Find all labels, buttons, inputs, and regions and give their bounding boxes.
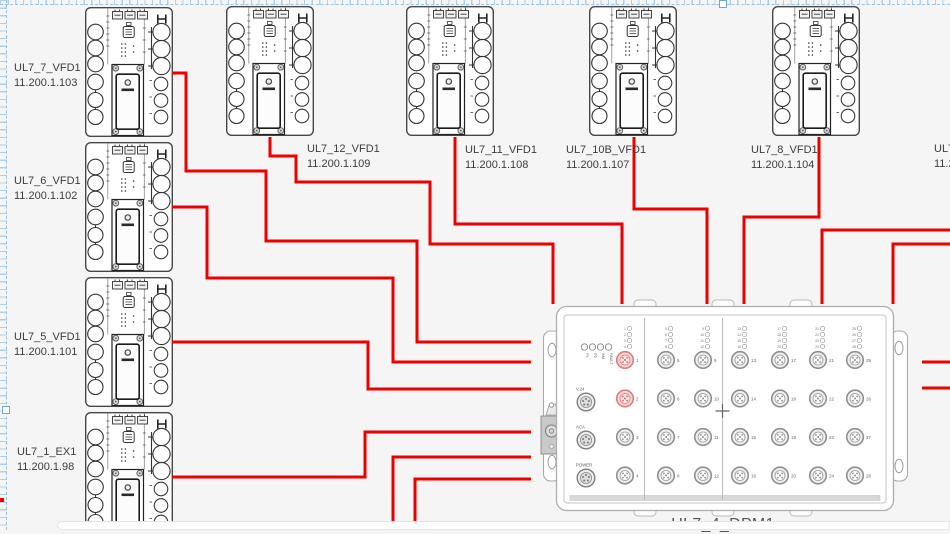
dpm-status-led: [581, 344, 587, 350]
dpm-port-led: [782, 338, 786, 342]
dpm-port-number: 19: [791, 435, 797, 440]
page-guide-handle-left[interactable]: [2, 406, 10, 414]
device-label-clipped: UL7 11.2: [934, 142, 950, 172]
dpm-port-led: [857, 344, 861, 348]
dpm-port-led: [742, 338, 746, 342]
dpm-status-led-label: FAULT: [609, 353, 613, 365]
dpm-port-led: [857, 338, 861, 342]
vfd-device-ul7-5[interactable]: [86, 278, 173, 407]
dpm-led-number: 13: [737, 327, 741, 331]
device-name: UL7_10B_VFD1: [566, 143, 646, 158]
dpm-port-number: 14: [751, 396, 757, 401]
dpm-led-number: 2: [624, 333, 626, 337]
device-name: UL7_5_VFD1: [14, 330, 81, 345]
vfd-device-ul7-6[interactable]: [86, 143, 173, 272]
dpm-led-number: 1: [624, 327, 626, 331]
dpm-port-number: 28: [866, 473, 872, 478]
dpm-led-number: 15: [737, 339, 741, 343]
device-ip: 11.200.1.98: [17, 460, 76, 475]
device-ip: 11.200.1.101: [14, 345, 81, 360]
device-ip: 11.200.1.107: [566, 158, 646, 173]
network-cable[interactable]: [172, 207, 531, 362]
device-ip: 11.2: [934, 157, 950, 172]
horizontal-scrollbar[interactable]: [57, 521, 950, 530]
dpm-port-led: [742, 332, 746, 336]
device-label: UL7_6_VFD1 11.200.1.102: [14, 174, 81, 204]
dpm-led-number: 6: [665, 333, 667, 337]
page-guide-handle-top[interactable]: [719, 0, 727, 8]
dpm-port-led: [742, 344, 746, 348]
device-ip: 11.200.1.104: [751, 158, 818, 173]
device-name: UL7_6_VFD1: [14, 174, 81, 189]
dpm-led-number: 12: [700, 345, 704, 349]
dpm-port-number: 25: [866, 358, 872, 363]
device-label: UL7_12_VFD1 11.200.1.109: [307, 142, 380, 172]
device-label: UL7_1_EX1 11.200.1.98: [17, 445, 76, 475]
device-name: UL7_7_VFD1: [14, 61, 81, 76]
dpm-led-number: 10: [700, 333, 704, 337]
dpm-port-led: [782, 332, 786, 336]
dpm-led-number: 25: [852, 327, 856, 331]
dpm-port-number: 23: [829, 435, 835, 440]
dpm-port-led: [668, 326, 672, 330]
dpm-led-number: 5: [665, 327, 667, 331]
vfd-device-ul7-10b[interactable]: [590, 7, 677, 136]
dpm-port-led: [705, 332, 709, 336]
dpm-led-number: 19: [777, 339, 781, 343]
cable-edge-marker: [0, 498, 4, 502]
dpm-status-led-label: P1: [585, 353, 589, 358]
device-ip: 11.200.1.102: [14, 189, 81, 204]
dpm-port-number: 12: [714, 473, 720, 478]
dpm-port-led: [668, 344, 672, 348]
dpm-led-number: 8: [665, 345, 667, 349]
dpm-led-number: 21: [815, 327, 819, 331]
dpm-device[interactable]: 1122334455667788991010111112121313141415…: [541, 300, 908, 516]
dpm-status-led: [605, 344, 611, 350]
dpm-port-number: 26: [866, 396, 872, 401]
dpm-port-led: [668, 332, 672, 336]
dpm-port-led: [820, 344, 824, 348]
dpm-port-led: [705, 326, 709, 330]
dpm-port-led: [857, 326, 861, 330]
device-label: UL7_8_VFD1 11.200.1.104: [751, 143, 818, 173]
device-name: UL7_12_VFD1: [307, 142, 380, 157]
device-label: UL7_5_VFD1 11.200.1.101: [14, 330, 81, 360]
dpm-led-number: 9: [702, 327, 704, 331]
dpm-port-number: 27: [866, 435, 872, 440]
dpm-port-led: [782, 326, 786, 330]
dpm-led-number: 11: [700, 339, 704, 343]
device-label: UL7_10B_VFD1 11.200.1.107: [566, 143, 646, 173]
dpm-port-number: 22: [829, 396, 835, 401]
dpm-port-led: [820, 338, 824, 342]
dpm-status-led: [589, 344, 595, 350]
dpm-led-number: 23: [815, 339, 819, 343]
dpm-connector-label: V.24: [576, 387, 585, 392]
dpm-port-number: 15: [751, 435, 757, 440]
dpm-led-number: 28: [852, 345, 856, 349]
dpm-port-led: [627, 344, 631, 348]
dpm-led-number: 17: [777, 327, 781, 331]
dpm-connector-label: ACA: [576, 425, 585, 430]
ground-screw-icon: [546, 425, 558, 437]
device-ip: 11.200.1.109: [307, 157, 380, 172]
clamp-screw-icon: [549, 403, 553, 407]
dpm-connector-power[interactable]: POWER: [576, 463, 595, 487]
network-cable[interactable]: [172, 342, 531, 389]
dpm-port-led: [627, 326, 631, 330]
dpm-led-number: 18: [777, 333, 781, 337]
left-page-guide: [0, 0, 7, 530]
dpm-led-number: 20: [777, 345, 781, 349]
dpm-port-led: [820, 326, 824, 330]
wiring-diagram: 1122334455667788991010111112121313141415…: [0, 0, 950, 530]
vfd-device-ul7-12[interactable]: [227, 7, 314, 136]
dpm-port-led: [627, 338, 631, 342]
device-name: UL7_11_VFD1: [465, 143, 537, 158]
dpm-faceplate: [564, 315, 886, 503]
dpm-led-number: 22: [815, 333, 819, 337]
dpm-port-led: [857, 332, 861, 336]
dpm-led-number: 3: [624, 339, 626, 343]
dpm-led-number: 4: [624, 345, 626, 349]
network-cable[interactable]: [172, 432, 531, 477]
dpm-port-number: 20: [791, 473, 797, 478]
dpm-led-number: 7: [665, 339, 667, 343]
dpm-connector-label: POWER: [576, 463, 592, 468]
dpm-led-number: 27: [852, 339, 856, 343]
network-cable[interactable]: [822, 230, 950, 304]
vfd-device-ul7-7[interactable]: [86, 8, 173, 137]
vfd-device-ul7-1[interactable]: [86, 413, 173, 530]
dpm-port-led: [668, 338, 672, 342]
dpm-port-led: [782, 344, 786, 348]
dpm-port-led: [705, 344, 709, 348]
dpm-status-led-label: P2: [593, 353, 597, 358]
dpm-port-led: [705, 338, 709, 342]
dpm-led-number: 24: [815, 345, 819, 349]
dpm-port-number: 16: [751, 473, 757, 478]
device-label: UL7_11_VFD1 11.200.1.108: [465, 143, 537, 173]
dpm-port-number: 10: [714, 396, 720, 401]
dpm-port-led: [820, 332, 824, 336]
dpm-port-number: 24: [829, 473, 835, 478]
device-name: UL7: [934, 142, 950, 157]
dpm-port-number: 18: [791, 396, 797, 401]
dpm-port-led: [627, 332, 631, 336]
network-cable[interactable]: [893, 244, 950, 304]
device-label: UL7_7_VFD1 11.200.1.103: [14, 61, 81, 91]
device-ip: 11.200.1.103: [14, 76, 81, 91]
device-name: UL7_8_VFD1: [751, 143, 818, 158]
vfd-device-ul7-8[interactable]: [773, 7, 860, 136]
dpm-port-number: 13: [751, 358, 757, 363]
dpm-led-number: 26: [852, 333, 856, 337]
dpm-status-led-label: RM: [601, 353, 605, 359]
device-ip: 11.200.1.108: [465, 158, 537, 173]
vfd-device-ul7-11[interactable]: [407, 7, 494, 136]
dpm-bottom-recess: [570, 496, 880, 501]
dpm-led-number: 14: [737, 333, 741, 337]
dpm-led-number: 16: [737, 345, 741, 349]
dpm-port-number: 17: [791, 358, 797, 363]
device-name: UL7_1_EX1: [17, 445, 76, 460]
dpm-status-led: [597, 344, 603, 350]
top-page-guide: [0, 0, 950, 5]
dpm-port-led: [742, 326, 746, 330]
dpm-port-number: 11: [714, 435, 719, 440]
dpm-port-number: 21: [829, 358, 835, 363]
